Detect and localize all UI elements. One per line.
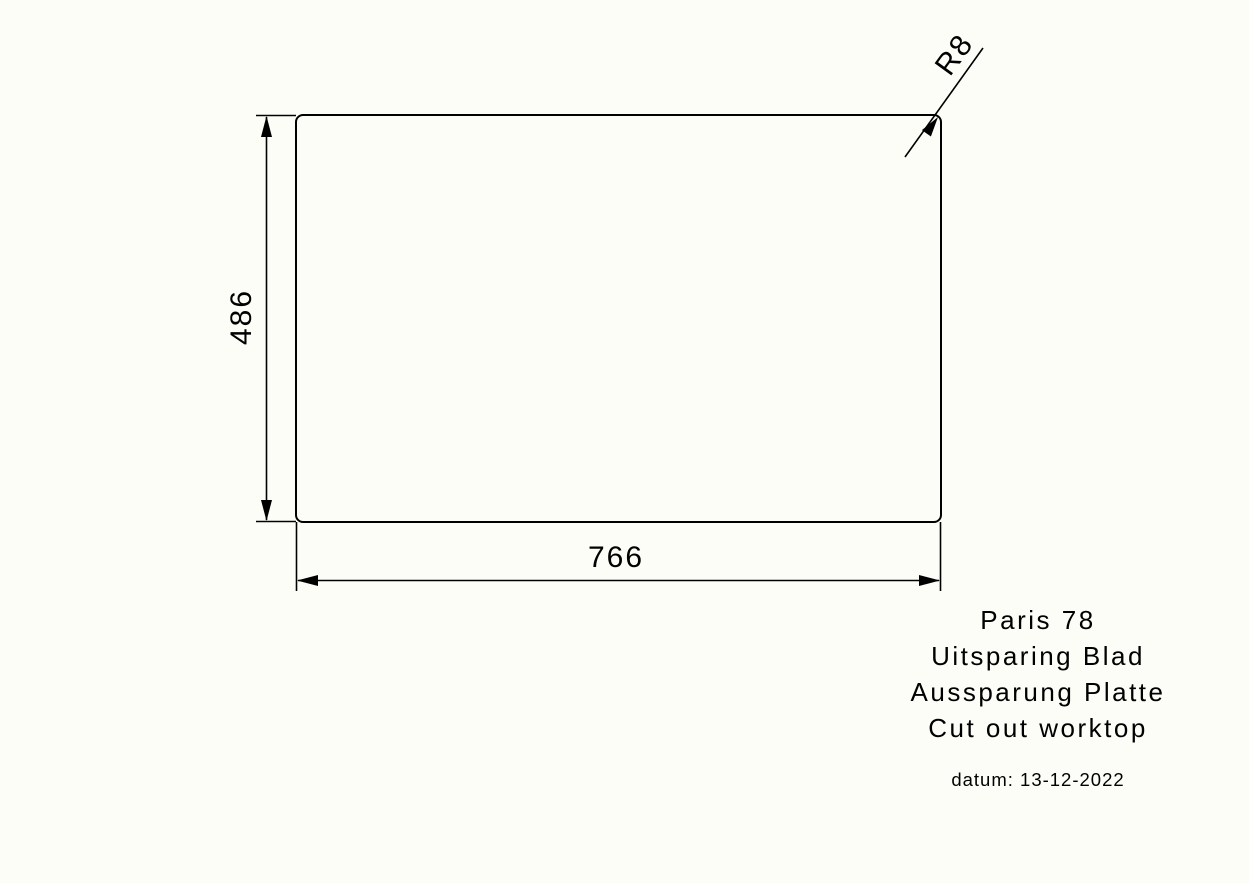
- date-label: datum: 13-12-2022: [890, 770, 1186, 789]
- product-name: Paris 78: [890, 602, 1186, 638]
- title-block: Paris 78 Uitsparing Blad Aussparung Plat…: [890, 602, 1186, 789]
- width-dimension-label: 766: [566, 543, 666, 573]
- height-dimension-label: 486: [227, 277, 257, 357]
- cutout-outline: [296, 115, 941, 522]
- width-arrow-right-icon: [919, 575, 940, 586]
- subtitle-german: Aussparung Platte: [890, 674, 1186, 710]
- subtitle-dutch: Uitsparing Blad: [890, 638, 1186, 674]
- radius-arrow-icon: [922, 117, 938, 137]
- width-arrow-left-icon: [297, 575, 318, 586]
- subtitle-english: Cut out worktop: [890, 710, 1186, 746]
- height-arrow-up-icon: [261, 116, 272, 137]
- height-arrow-down-icon: [261, 500, 272, 521]
- technical-drawing-canvas: 486 766 R8 Paris 78 Uitsparing Blad Auss…: [0, 0, 1249, 883]
